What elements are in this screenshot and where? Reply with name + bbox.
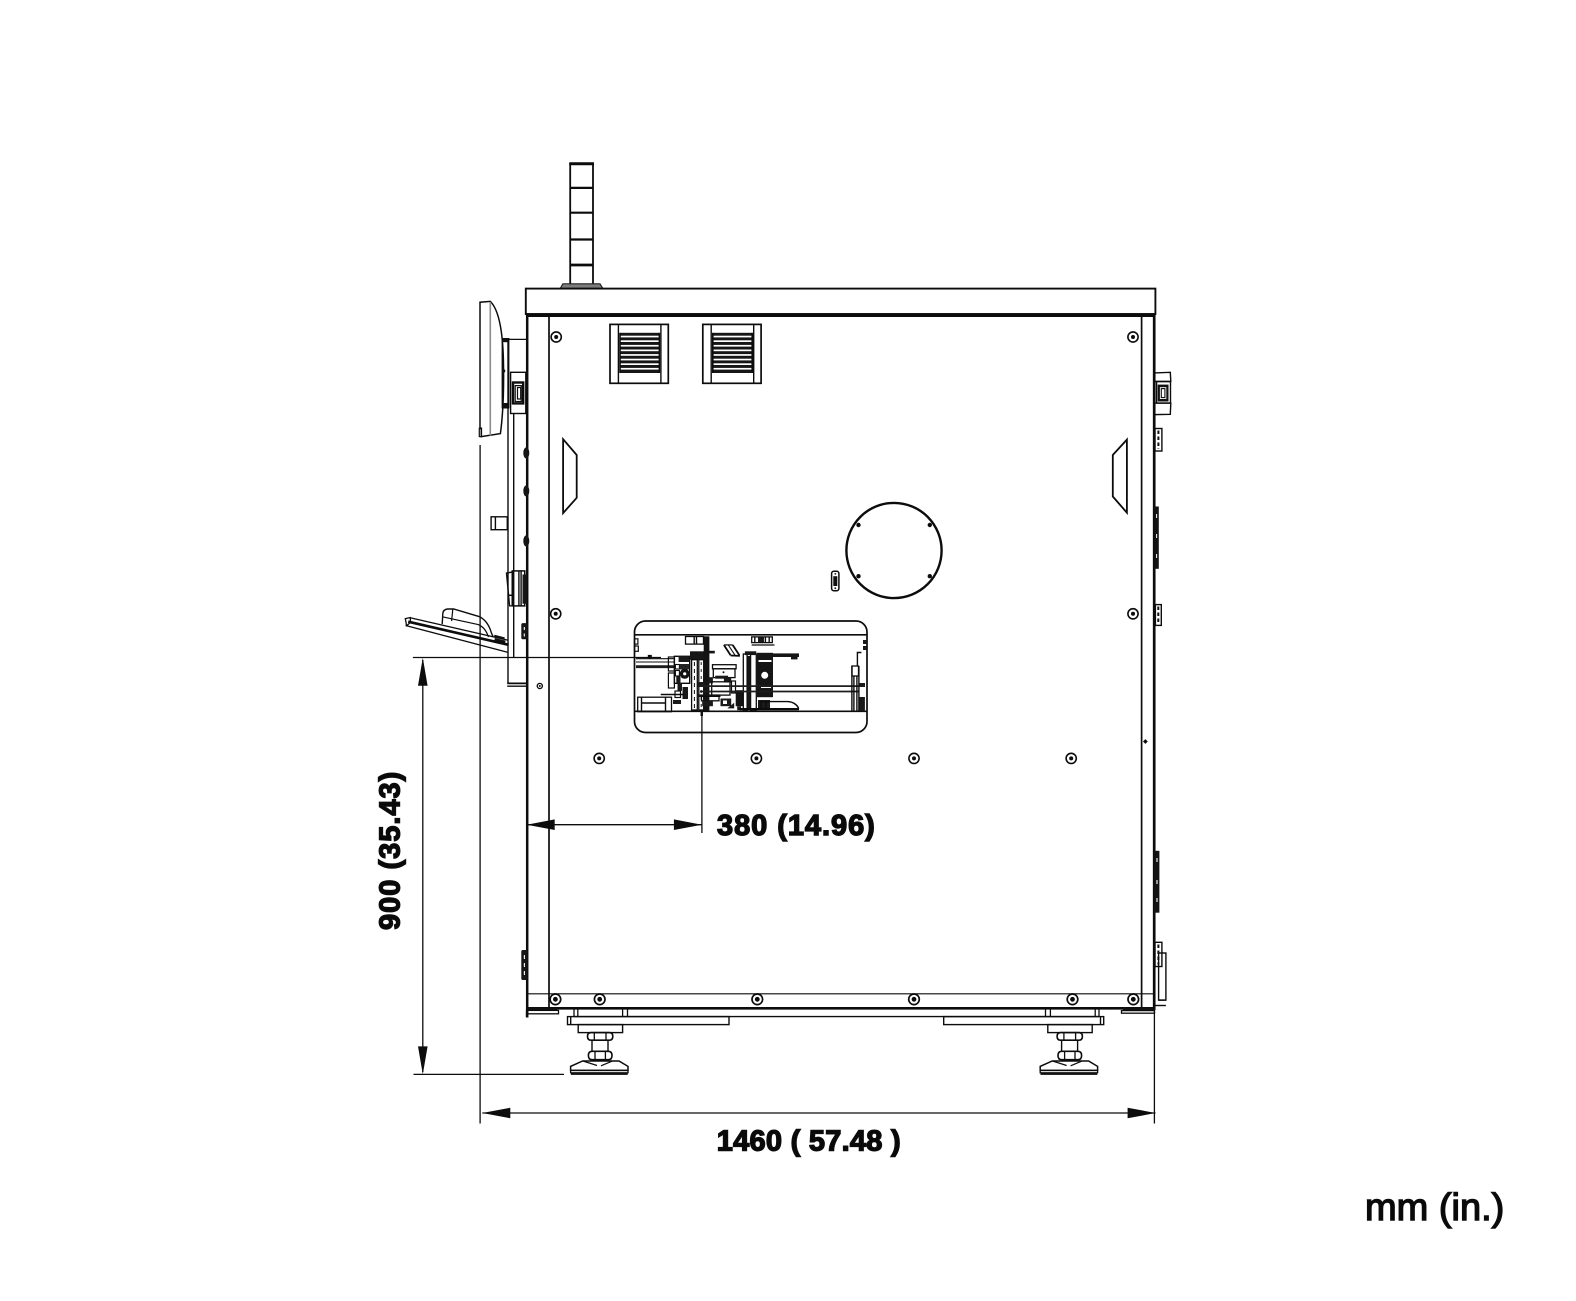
svg-text:900 (35.43): 900 (35.43) [375,771,407,930]
svg-text:mm (in.): mm (in.) [1365,1187,1504,1229]
svg-text:1460 ( 57.48 ): 1460 ( 57.48 ) [717,1126,901,1158]
svg-text:380 (14.96): 380 (14.96) [717,810,876,842]
